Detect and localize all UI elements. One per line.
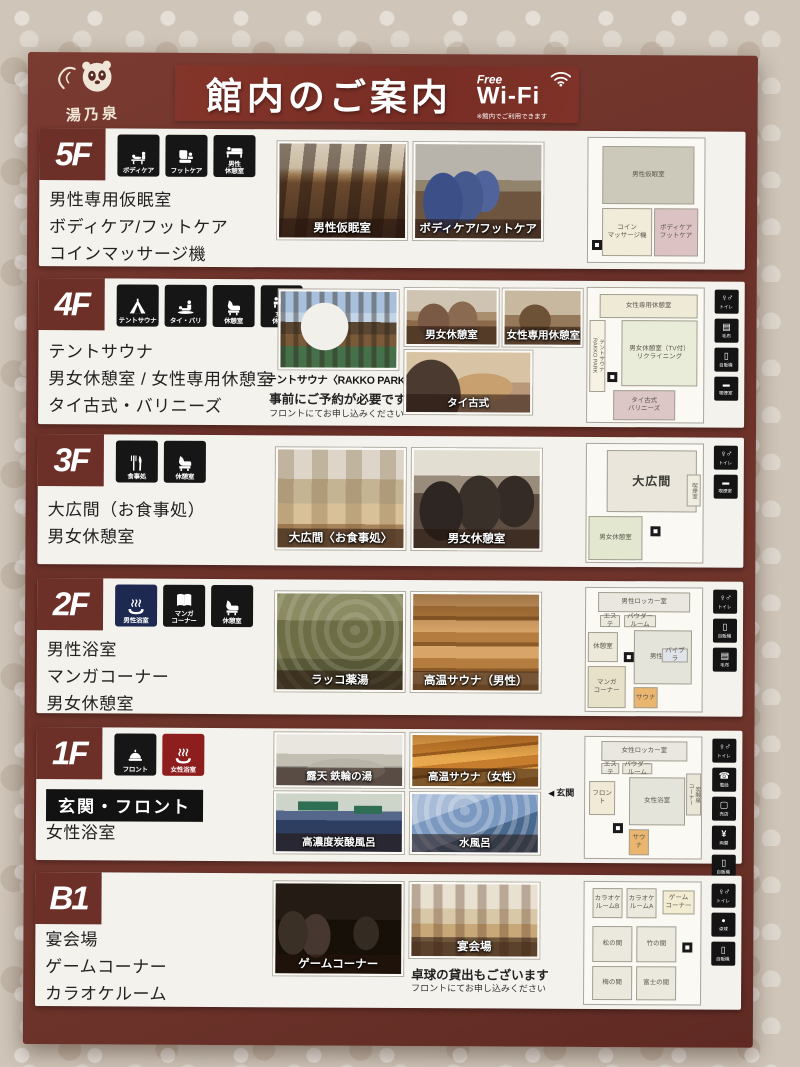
thai-bali-massage-icon: タイ・バリ bbox=[165, 285, 207, 327]
floor-section-4f: 4F テントサウナ タイ・バリ 休憩室 女性 休憩室 テントサウナ 男女休憩室 … bbox=[38, 278, 745, 428]
page-title: 館内のご案内 bbox=[175, 66, 477, 122]
photo-rakko-medicinal-bath: ラッコ薬湯 bbox=[275, 591, 406, 692]
rest-room-icon: 休憩室 bbox=[213, 285, 255, 327]
map-amenity-icons: トイレ 卓球 自販機 bbox=[711, 884, 735, 966]
map-room: マンガ コーナー bbox=[588, 666, 626, 708]
restroom-icon: トイレ bbox=[713, 590, 737, 614]
icon-label: ボディケア bbox=[123, 167, 154, 174]
floor-3f-icons: 食事処 休憩室 bbox=[116, 440, 206, 482]
map-room: コイン マッサージ機 bbox=[602, 208, 652, 256]
map-room: 喫煙室 bbox=[687, 474, 701, 506]
map-panel: 女性ロッカー室 エステ パウダールーム 女性浴室 炭酸泉 コーナー サウナ フロ… bbox=[584, 736, 703, 860]
map-room: 女性浴室 bbox=[629, 777, 685, 825]
photo-banquet-hall: 宴会場 bbox=[409, 882, 539, 959]
facility-item: 宴会場 bbox=[45, 926, 167, 954]
wifi-icon bbox=[549, 69, 573, 86]
facility-list: 大広間（お食事処） 男女休憩室 bbox=[47, 496, 205, 551]
photo-caption: ゲームコーナー bbox=[275, 954, 401, 974]
floor-badge-b1: B1 bbox=[35, 872, 101, 924]
map-amenity-icons: トイレ 喫煙室 bbox=[714, 446, 738, 499]
icon-label: 食事処 bbox=[127, 473, 146, 480]
floor-section-1f: 1F フロント 女性浴室 玄関・フロント 女性浴室 露天 鉄輪の湯 高温サウナ（… bbox=[36, 727, 743, 864]
photo-womens-sauna: 高温サウナ（女性） bbox=[410, 733, 540, 789]
icon-label: 男性 休憩室 bbox=[225, 161, 244, 175]
photo-open-air-bath: 露天 鉄輪の湯 bbox=[274, 732, 404, 788]
map-room: エステ bbox=[600, 615, 620, 627]
map-panel: カラオケ ルームB カラオケ ルームA ゲーム コーナー 松の間 竹の間 梅の間… bbox=[583, 881, 702, 1006]
wifi-label: Wi-Fi bbox=[477, 84, 573, 109]
icon-label: 男性浴室 bbox=[123, 617, 148, 624]
photo-caption: 大広間〈お食事処〉 bbox=[277, 528, 403, 548]
floor-3f-map: 大広間 男女休憩室 喫煙室 トイレ 喫煙室 bbox=[585, 441, 738, 566]
floor-4f-map: 女性専用休憩室 男女休憩室（TV付） リクライニング テントサウナ RAKKO … bbox=[586, 285, 739, 426]
facility-item: テントサウナ bbox=[48, 338, 274, 366]
photo-dining-hall: 大広間〈お食事処〉 bbox=[275, 447, 406, 550]
photo-bodycare-footcare: ボディケア/フットケア bbox=[413, 142, 544, 241]
facility-list: テントサウナ 男女休憩室 / 女性専用休憩室 タイ古式・バリニーズ bbox=[48, 338, 274, 420]
map-icon-label: トイレ bbox=[720, 303, 734, 309]
facility-list: 女性浴室 bbox=[46, 819, 116, 846]
map-icon-label: トイレ bbox=[718, 752, 732, 758]
map-panel: 女性専用休憩室 男女休憩室（TV付） リクライニング テントサウナ RAKKO … bbox=[586, 287, 705, 424]
facility-list: 男性専用仮眠室 ボディケア/フットケア コインマッサージ機 bbox=[49, 186, 228, 268]
vending-machine-icon: 自販機 bbox=[714, 348, 738, 372]
map-room: パウダールーム bbox=[624, 615, 656, 627]
photo-caption: 男性仮眠室 bbox=[279, 218, 405, 238]
map-room: 男性仮眠室 bbox=[602, 146, 694, 204]
restroom-icon: トイレ bbox=[715, 290, 739, 314]
map-amenity-icons: トイレ 毛布 自販機 喫煙室 bbox=[714, 290, 739, 401]
map-room: 松の間 bbox=[592, 926, 632, 962]
floor-guide-poster: 湯乃泉 館内のご案内 Free Wi-Fi ※館内でご利用できます 5F ボディ… bbox=[23, 52, 758, 1048]
reservation-note: 事前にご予約が必要です bbox=[269, 388, 406, 408]
photo-caption: テントサウナ〈RAKKO PARK〉 bbox=[266, 372, 415, 388]
brand-name: 湯乃泉 bbox=[36, 101, 149, 127]
facility-item: 男性浴室 bbox=[47, 636, 170, 664]
front-desk-note: フロントにてお申し込みください bbox=[411, 981, 546, 995]
floor-4f-icons: テントサウナ タイ・バリ 休憩室 女性 休憩室 bbox=[117, 284, 303, 327]
photo-caption: 男女休憩室 bbox=[406, 326, 496, 344]
restroom-icon: トイレ bbox=[712, 884, 736, 908]
map-room: テントサウナ RAKKO PARK bbox=[589, 320, 605, 392]
map-panel: 男性仮眠室 コイン マッサージ機 ボディケア フットケア bbox=[587, 137, 706, 264]
photo-caption: 露天 鉄輪の湯 bbox=[276, 767, 402, 786]
photo-caption: 男女休憩室 bbox=[413, 529, 539, 549]
smoking-room-icon: 喫煙室 bbox=[714, 377, 738, 401]
icon-label: フットケア bbox=[171, 168, 203, 175]
photo-mens-sauna: 高温サウナ（男性） bbox=[411, 592, 542, 693]
map-room: バイブラ bbox=[662, 648, 688, 662]
floor-badge-1f: 1F bbox=[36, 727, 102, 779]
map-icon-label: トイレ bbox=[717, 897, 731, 903]
elevator-icon bbox=[592, 240, 602, 250]
floor-section-b1: B1 宴会場 ゲームコーナー カラオケルーム ゲームコーナー 宴会場 卓球の貸出… bbox=[35, 872, 742, 1010]
facility-item: ボディケア/フットケア bbox=[49, 213, 228, 241]
map-amenity-icons: トイレ 電話 売店 両替 自販機 bbox=[712, 739, 737, 879]
photo-caption: 高濃度炭酸風呂 bbox=[276, 833, 402, 852]
mens-bath-icon: 男性浴室 bbox=[115, 584, 157, 626]
facility-item: ゲームコーナー bbox=[45, 953, 167, 981]
elevator-icon bbox=[613, 823, 623, 833]
map-room: 男女休憩室 bbox=[588, 516, 642, 560]
map-icon-label: 毛布 bbox=[720, 661, 729, 667]
floor-section-3f: 3F 食事処 休憩室 大広間（お食事処） 男女休憩室 大広間〈お食事処〉 男女休… bbox=[37, 434, 744, 568]
facility-item: 男女休憩室 bbox=[47, 523, 205, 551]
free-wifi-mark: Free Wi-Fi ※館内でご利用できます bbox=[477, 69, 579, 121]
blanket-icon: 毛布 bbox=[713, 648, 737, 672]
floor-1f-icons: フロント 女性浴室 bbox=[114, 733, 204, 775]
smoking-room-icon: 喫煙室 bbox=[714, 475, 738, 499]
photo-thai-massage: タイ古式 bbox=[404, 350, 532, 415]
map-room: エステ bbox=[601, 763, 619, 774]
floor-5f-map: 男性仮眠室 コイン マッサージ機 ボディケア フットケア bbox=[587, 135, 740, 266]
photo-caption: ラッコ薬湯 bbox=[277, 670, 403, 690]
map-room: 富士の間 bbox=[636, 966, 676, 1000]
wallpaper-background: { "header": { "logo_text": "湯乃泉", "title… bbox=[0, 0, 800, 1067]
facility-item: コインマッサージ機 bbox=[49, 240, 228, 268]
map-panel: 男性ロッカー室 エステ パウダールーム 休憩室 男性浴室 マンガ コーナー サウ… bbox=[585, 587, 704, 713]
shop-icon: 売店 bbox=[712, 797, 736, 821]
map-icon-label: 喫煙室 bbox=[719, 389, 733, 395]
map-room: 休憩室 bbox=[588, 632, 618, 662]
facility-item: タイ古式・バリニーズ bbox=[48, 392, 274, 420]
photo-caption: 水風呂 bbox=[412, 834, 538, 853]
facility-item: 男女休憩室 / 女性専用休憩室 bbox=[48, 365, 274, 393]
facility-list: 宴会場 ゲームコーナー カラオケルーム bbox=[45, 926, 167, 1008]
map-room: 男女休憩室（TV付） リクライニング bbox=[621, 320, 697, 386]
icon-label: 休憩室 bbox=[223, 618, 242, 625]
map-room: 女性ロッカー室 bbox=[601, 741, 687, 761]
map-icon-label: 自販機 bbox=[717, 868, 731, 874]
tent-sauna-icon: テントサウナ bbox=[117, 284, 159, 326]
map-panel: 大広間 男女休憩室 喫煙室 bbox=[585, 443, 704, 564]
map-amenity-icons: トイレ 自販機 毛布 bbox=[713, 590, 737, 672]
map-room: カラオケ ルームA bbox=[626, 888, 656, 918]
icon-label: 休憩室 bbox=[175, 474, 194, 481]
map-room: パウダールーム bbox=[622, 763, 652, 774]
blanket-icon: 毛布 bbox=[714, 319, 738, 343]
map-icon-label: 卓球 bbox=[719, 925, 728, 931]
floor-b1-map: カラオケ ルームB カラオケ ルームA ゲーム コーナー 松の間 竹の間 梅の間… bbox=[583, 879, 736, 1008]
map-icon-label: 両替 bbox=[719, 839, 728, 845]
brand-logo: 湯乃泉 bbox=[34, 54, 149, 127]
icon-label: 女性浴室 bbox=[171, 767, 196, 774]
map-room: ゲーム コーナー bbox=[662, 890, 694, 914]
map-room: カラオケ ルームB bbox=[592, 888, 622, 918]
elevator-icon bbox=[607, 372, 617, 382]
map-icon-label: 電話 bbox=[720, 781, 729, 787]
restroom-icon: トイレ bbox=[714, 446, 738, 470]
floor-5f-icons: ボディケア フットケア 男性 休憩室 bbox=[117, 134, 255, 177]
map-room: 女性専用休憩室 bbox=[600, 294, 698, 319]
icon-label: フロント bbox=[123, 766, 148, 773]
floor-badge-4f: 4F bbox=[39, 278, 105, 330]
floor-badge-2f: 2F bbox=[37, 578, 103, 630]
floor-badge-3f: 3F bbox=[38, 434, 104, 486]
front-desk-note: フロントにてお申し込みください bbox=[269, 406, 404, 420]
map-icon-label: 喫煙室 bbox=[719, 487, 733, 493]
map-icon-label: トイレ bbox=[718, 603, 732, 609]
floor-1f-map: 玄関 女性ロッカー室 エステ パウダールーム 女性浴室 炭酸泉 コーナー サウナ… bbox=[584, 734, 737, 862]
map-room: 竹の間 bbox=[636, 926, 676, 962]
map-room: フロント bbox=[589, 781, 615, 815]
facility-item: 女性浴室 bbox=[46, 819, 116, 846]
photo-caption: ボディケア/フットケア bbox=[415, 219, 541, 239]
facility-list: 男性浴室 マンガコーナー 男女休憩室 bbox=[47, 636, 170, 718]
dining-icon: 食事処 bbox=[116, 440, 158, 482]
bodycare-icon: ボディケア bbox=[117, 134, 159, 176]
map-icon-label: 自販機 bbox=[718, 632, 732, 638]
entrance-arrow-label: 玄関 bbox=[548, 786, 574, 799]
map-room: サウナ bbox=[629, 829, 649, 855]
otter-mascot-icon bbox=[48, 54, 134, 102]
floor-section-5f: 5F ボディケア フットケア 男性 休憩室 男性専用仮眠室 ボディケア/フットケ… bbox=[39, 128, 746, 270]
rest-room-icon: 休憩室 bbox=[211, 585, 253, 627]
photo-caption: 高温サウナ（女性） bbox=[412, 768, 538, 787]
front-desk-icon: フロント bbox=[114, 733, 156, 775]
floor-badge-5f: 5F bbox=[39, 128, 105, 180]
facility-item: 男性専用仮眠室 bbox=[49, 186, 228, 214]
rest-room-icon: 休憩室 bbox=[164, 441, 206, 483]
photo-carbonated-bath: 高濃度炭酸風呂 bbox=[274, 791, 404, 854]
map-icon-label: 毛布 bbox=[722, 332, 731, 338]
vending-machine-icon: 自販機 bbox=[713, 619, 737, 643]
floor-section-2f: 2F 男性浴室 マンガ コーナー 休憩室 男性浴室 マンガコーナー 男女休憩室 … bbox=[37, 578, 744, 717]
map-room: 炭酸泉 コーナー bbox=[686, 773, 701, 815]
floor-2f-icons: 男性浴室 マンガ コーナー 休憩室 bbox=[115, 584, 253, 627]
facility-item: カラオケルーム bbox=[45, 980, 167, 1008]
photo-womens-rest-room: 女性専用休憩室 bbox=[502, 288, 582, 346]
map-icon-label: 自販機 bbox=[716, 955, 730, 961]
phone-icon: 電話 bbox=[712, 768, 736, 792]
mens-rest-room-icon: 男性 休憩室 bbox=[213, 135, 255, 177]
photo-game-corner: ゲームコーナー bbox=[273, 881, 403, 976]
photo-caption: 宴会場 bbox=[411, 937, 537, 957]
map-room: サウナ bbox=[634, 687, 658, 708]
footcare-icon: フットケア bbox=[165, 135, 207, 177]
facility-item: 男女休憩室 bbox=[47, 690, 170, 718]
floor-2f-map: 男性ロッカー室 エステ パウダールーム 休憩室 男性浴室 マンガ コーナー サウ… bbox=[585, 585, 738, 715]
womens-bath-icon: 女性浴室 bbox=[162, 734, 204, 776]
map-room: ボディケア フットケア bbox=[654, 208, 698, 256]
icon-label: テントサウナ bbox=[119, 317, 157, 324]
map-room: タイ古式 バリニーズ bbox=[613, 390, 675, 420]
money-exchange-icon: 両替 bbox=[712, 826, 736, 850]
restroom-icon: トイレ bbox=[712, 739, 736, 763]
elevator-icon bbox=[682, 942, 692, 952]
wifi-note: ※館内でご利用できます bbox=[477, 110, 573, 121]
facility-item: マンガコーナー bbox=[47, 663, 170, 691]
photo-cold-bath: 水風呂 bbox=[410, 792, 540, 855]
map-room: 男性ロッカー室 bbox=[598, 592, 690, 612]
icon-label: 休憩室 bbox=[224, 318, 243, 325]
photo-tent-sauna bbox=[278, 289, 398, 370]
photo-caption: タイ古式 bbox=[406, 394, 530, 413]
map-icon-label: トイレ bbox=[719, 459, 733, 465]
icon-label: タイ・バリ bbox=[170, 318, 202, 325]
map-room: 大広間 bbox=[607, 450, 697, 512]
photo-mens-nap-room: 男性仮眠室 bbox=[277, 141, 408, 240]
photo-mixed-rest-room: 男女休憩室 bbox=[404, 288, 498, 346]
elevator-icon bbox=[650, 526, 660, 536]
header-band: 館内のご案内 Free Wi-Fi ※館内でご利用できます bbox=[175, 65, 579, 123]
manga-corner-icon: マンガ コーナー bbox=[163, 585, 205, 627]
photo-mixed-rest-room: 男女休憩室 bbox=[411, 448, 542, 551]
entrance-front-desk-label: 玄関・フロント bbox=[46, 789, 203, 822]
table-tennis-icon: 卓球 bbox=[711, 913, 735, 937]
facility-item: 大広間（お食事処） bbox=[48, 496, 206, 524]
photo-caption: 女性専用休憩室 bbox=[504, 326, 580, 344]
map-icon-label: 売店 bbox=[719, 810, 728, 816]
map-room: 梅の間 bbox=[592, 966, 632, 1000]
vending-machine-icon: 自販機 bbox=[711, 942, 735, 966]
map-icon-label: 自販機 bbox=[720, 361, 734, 367]
icon-label: マンガ コーナー bbox=[171, 610, 196, 624]
elevator-icon bbox=[624, 652, 634, 662]
photo-caption: 高温サウナ（男性） bbox=[413, 671, 539, 691]
